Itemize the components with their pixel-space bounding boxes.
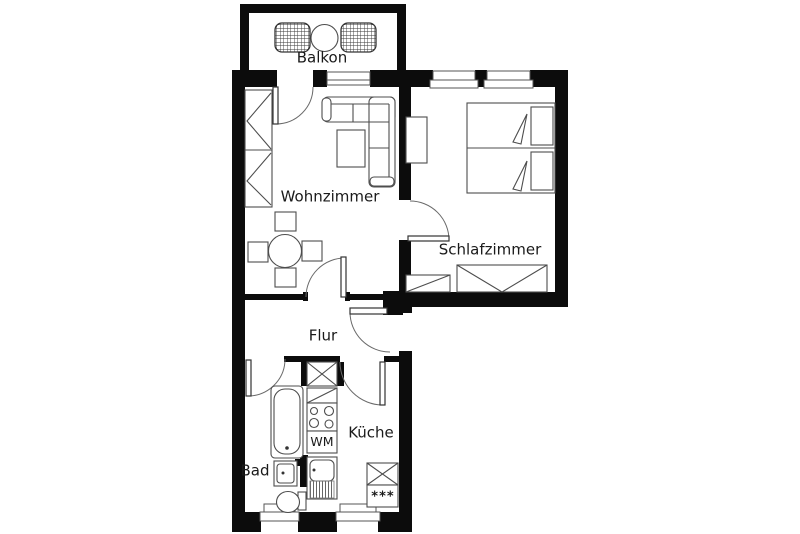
dining-chair-left — [248, 242, 268, 262]
bathroom-fixtures — [271, 386, 306, 513]
balcony-door — [273, 87, 313, 124]
kitchen-sink — [307, 457, 337, 499]
dining-table — [269, 235, 302, 268]
balcony-chair-right — [341, 23, 376, 52]
ventilation-shaft — [307, 362, 337, 386]
dining-chair-top — [275, 212, 296, 231]
wardrobe-living-room — [245, 90, 272, 207]
bathtub — [271, 386, 303, 458]
bedroom-wardrobe-large — [457, 265, 547, 292]
floor-plan-drawing — [0, 0, 800, 534]
fridge-freezer — [367, 463, 398, 507]
toilet — [277, 492, 307, 513]
bedroom-door — [408, 201, 449, 241]
dining-chair-bottom — [275, 268, 296, 287]
bathroom-sink — [274, 461, 297, 486]
floor-plan: Balkon Wohnzimmer Schlafzimmer Flur Küch… — [0, 0, 800, 534]
bedroom-furniture — [406, 103, 555, 292]
living-room-window — [327, 72, 370, 85]
living-room-door — [306, 257, 346, 297]
balcony-furniture — [275, 23, 376, 52]
dining-set — [248, 212, 322, 287]
bedroom-shelf — [406, 117, 427, 163]
stove — [307, 403, 337, 431]
bedroom-window-right — [484, 71, 533, 88]
bed-pillow-bottom — [531, 152, 553, 190]
dining-chair-right — [302, 241, 322, 261]
balcony-table — [311, 25, 338, 52]
balcony-chair-left — [275, 23, 310, 52]
washing-machine — [307, 431, 337, 453]
living-room-furniture — [245, 90, 395, 287]
kitchen-cabinet — [307, 388, 337, 403]
kitchen-door — [340, 362, 385, 405]
bedroom-wardrobe-small — [406, 275, 450, 292]
bed-pillow-top — [531, 107, 553, 145]
bedroom-window-left — [430, 71, 478, 88]
double-bed — [467, 103, 555, 193]
coffee-table — [337, 130, 365, 167]
